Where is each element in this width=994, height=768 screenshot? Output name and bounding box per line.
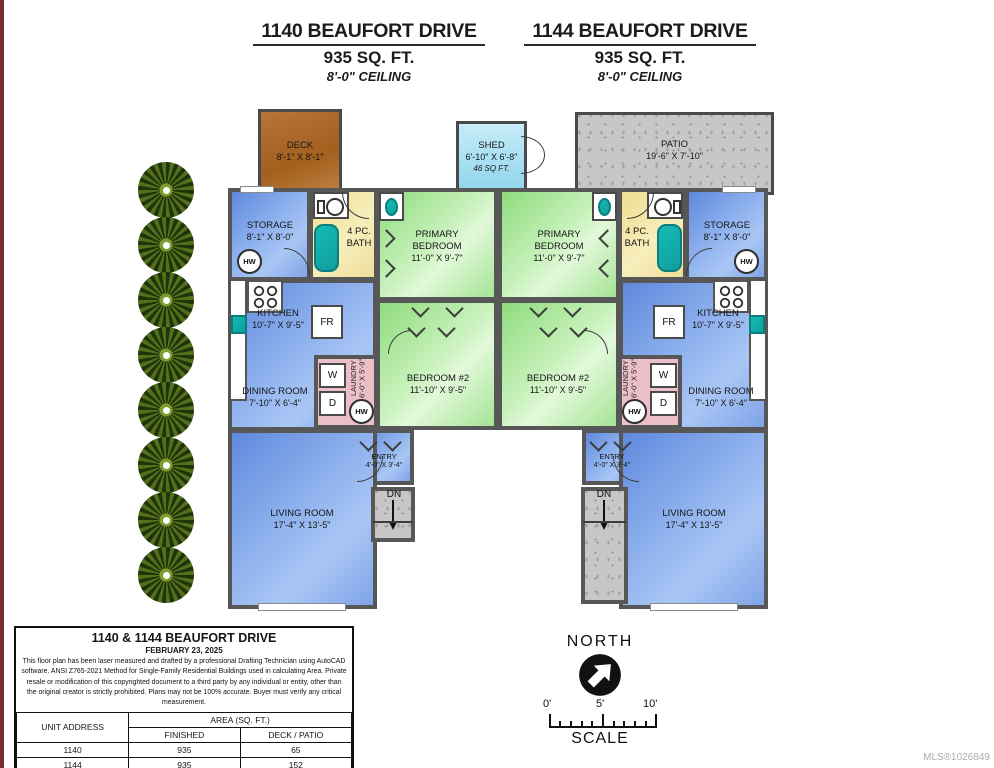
bath-label-1144: 4 PC. BATH: [620, 226, 654, 250]
stairs-dn-label-1144: DN: [586, 489, 622, 500]
unit-address: 1144 BEAUFORT DRIVE: [524, 20, 755, 46]
scale-tick: [655, 714, 657, 726]
fridge-1140: FR: [311, 305, 343, 339]
scale-label: SCALE: [563, 730, 637, 748]
storage-label-1140: STORAGE8'-1" X 8'-0": [232, 220, 308, 244]
tree-icon: [138, 272, 194, 328]
col-deck-patio: DECK / PATIO: [240, 727, 351, 742]
scale-tick: [613, 721, 615, 726]
info-box: 1140 & 1144 BEAUFORT DRIVE FEBRUARY 23, …: [14, 626, 354, 768]
north-arrow-icon: [578, 653, 622, 697]
tree-icon: [138, 217, 194, 273]
kitchen-label-1140: KITCHEN10'-7" X 9'-5": [245, 308, 311, 332]
bedroom2-label-1144: BEDROOM #211'-10" X 9'-5": [514, 373, 602, 397]
shed-door-arc: [521, 136, 545, 174]
living-label-1140: LIVING ROOM17'-4" X 13'-5": [258, 508, 346, 532]
stair-tread-1140: [373, 521, 413, 523]
unit-title-1140: 1140 BEAUFORT DRIVE 935 SQ. FT. 8'-0" CE…: [244, 20, 494, 84]
kitchen-sink-icon: [749, 315, 765, 334]
unit-ceiling: 8'-0" CEILING: [515, 69, 765, 84]
living-label-1144: LIVING ROOM17'-4" X 13'-5": [650, 508, 738, 532]
bedroom2-label-1140: BEDROOM #211'-10" X 9'-5": [394, 373, 482, 397]
bath-label-1140: 4 PC. BATH: [342, 226, 376, 250]
hot-water-tank-1144-laundry: HW: [622, 399, 647, 424]
tree-icon: [138, 382, 194, 438]
scale-tick-label-10: 10': [643, 698, 657, 710]
unit-title-1144: 1144 BEAUFORT DRIVE 935 SQ. FT. 8'-0" CE…: [515, 20, 765, 84]
laundry-label-1144: LAUNDRY 6'-0" X 5'-9": [622, 358, 646, 398]
window: [240, 186, 274, 193]
scale-tick: [549, 714, 551, 726]
table-row: 1144 935 152: [17, 757, 352, 768]
vanity-1140: [379, 192, 404, 221]
col-unit-address: UNIT ADDRESS: [17, 712, 129, 742]
kitchen-label-1144: KITCHEN10'-7" X 9'-5": [685, 308, 751, 332]
scale-tick: [581, 721, 583, 726]
toilet-icon: [651, 198, 681, 216]
hot-water-tank-1140-laundry: HW: [349, 399, 374, 424]
floor-plan-canvas: 1140 BEAUFORT DRIVE 935 SQ. FT. 8'-0" CE…: [0, 0, 994, 768]
washer-1140: W: [319, 363, 346, 388]
deck-label: DECK 8'-1" X 8'-1": [261, 140, 339, 164]
patio: PATIO 19'-6" X 7'-10": [575, 112, 774, 195]
bedroom2-1144: [498, 299, 620, 430]
vanity-1144: [592, 192, 617, 221]
scale-bar: [549, 714, 657, 728]
window: [650, 603, 738, 611]
unit-ceiling: 8'-0" CEILING: [244, 69, 494, 84]
dining-label-1144: DINING ROOM7'-10" X 6'-4": [684, 386, 758, 410]
stair-tread-1144: [583, 521, 626, 523]
washer-1144: W: [650, 363, 677, 388]
fridge-1144: FR: [653, 305, 685, 339]
deck: DECK 8'-1" X 8'-1": [258, 109, 342, 194]
dining-label-1140: DINING ROOM7'-10" X 6'-4": [238, 386, 312, 410]
scale-tick: [623, 721, 625, 726]
shed-label: SHED 6'-10" X 6'-8" 46 SQ FT.: [459, 140, 524, 174]
mls-watermark: MLS®1026849: [923, 752, 990, 763]
sink-icon: [598, 198, 611, 216]
tree-icon: [138, 492, 194, 548]
dryer-1144: D: [650, 391, 677, 416]
col-area: AREA (SQ. FT.): [129, 712, 352, 727]
tree-icon: [138, 162, 194, 218]
scale-tick: [602, 714, 604, 726]
dryer-1140: D: [319, 391, 346, 416]
col-finished: FINISHED: [129, 727, 240, 742]
bathtub-icon: [314, 224, 339, 272]
area-table: UNIT ADDRESS AREA (SQ. FT.) FINISHED DEC…: [16, 712, 352, 768]
stairs-dn-label-1140: DN: [376, 489, 412, 500]
table-row: 1140 935 65: [17, 742, 352, 757]
laundry-label-1140: LAUNDRY 6'-0" X 5'-9": [350, 358, 374, 398]
patio-label: PATIO 19'-6" X 7'-10": [578, 139, 771, 163]
primary-label-1144: PRIMARY BEDROOM11'-0" X 9'-7": [519, 229, 599, 265]
scale-tick: [634, 721, 636, 726]
sink-icon: [385, 198, 398, 216]
window: [722, 186, 756, 193]
storage-label-1144: STORAGE8'-1" X 8'-0": [689, 220, 765, 244]
shed: SHED 6'-10" X 6'-8" 46 SQ FT.: [456, 121, 527, 197]
scale-tick-label-5: 5': [596, 698, 604, 710]
unit-area: 935 SQ. FT.: [244, 48, 494, 68]
bedroom2-1140: [376, 299, 498, 430]
info-date: FEBRUARY 23, 2025: [16, 646, 352, 655]
kitchen-counter-1144: [749, 279, 767, 401]
tree-icon: [138, 327, 194, 383]
kitchen-counter-1140: [229, 279, 247, 401]
unit-area: 935 SQ. FT.: [515, 48, 765, 68]
left-border-strip: [0, 0, 4, 768]
tree-icon: [138, 547, 194, 603]
scale-tick-label-0: 0': [543, 698, 551, 710]
scale-tick: [645, 721, 647, 726]
scale-tick: [591, 721, 593, 726]
window: [258, 603, 346, 611]
scale-tick: [559, 721, 561, 726]
primary-label-1140: PRIMARY BEDROOM11'-0" X 9'-7": [397, 229, 477, 265]
tree-icon: [138, 437, 194, 493]
info-title: 1140 & 1144 BEAUFORT DRIVE: [16, 631, 352, 645]
info-disclaimer: This floor plan has been laser measured …: [16, 657, 352, 712]
hot-water-tank-1144-storage: HW: [734, 249, 759, 274]
scale-tick: [570, 721, 572, 726]
north-label: NORTH: [560, 633, 640, 651]
hot-water-tank-1140-storage: HW: [237, 249, 262, 274]
bathtub-icon: [657, 224, 682, 272]
unit-address: 1140 BEAUFORT DRIVE: [253, 20, 484, 46]
